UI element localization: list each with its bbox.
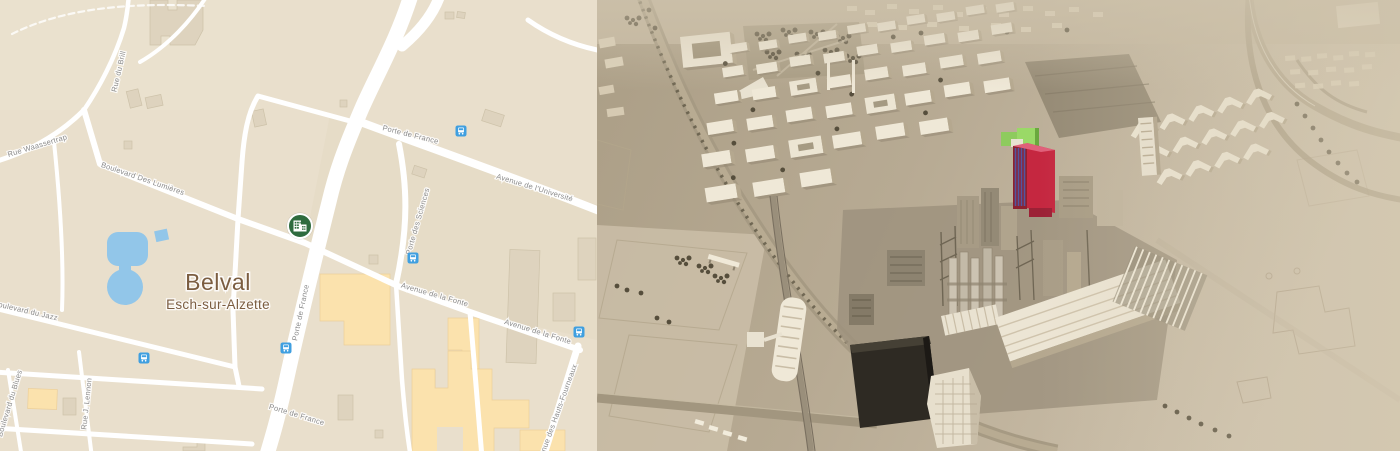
courtyard-notch xyxy=(437,427,463,451)
bus-stop-icon[interactable] xyxy=(456,126,467,137)
bus-stop-icon[interactable] xyxy=(139,353,150,364)
masterplan-render-image xyxy=(597,0,1400,451)
office-building-marker-icon[interactable] xyxy=(287,213,314,240)
bus-stop-icon[interactable] xyxy=(281,343,292,354)
screenshot: Rue du Brill Rue Waassertrap Boulevard D… xyxy=(0,0,1400,451)
place-label-belval: Belval xyxy=(185,269,251,295)
haze-top xyxy=(597,0,1400,90)
map-panel[interactable]: Rue du Brill Rue Waassertrap Boulevard D… xyxy=(0,0,597,451)
bus-stop-icon[interactable] xyxy=(574,327,585,338)
bus-stop-icon[interactable] xyxy=(408,253,419,264)
place-label-esch: Esch-sur-Alzette xyxy=(166,297,270,312)
